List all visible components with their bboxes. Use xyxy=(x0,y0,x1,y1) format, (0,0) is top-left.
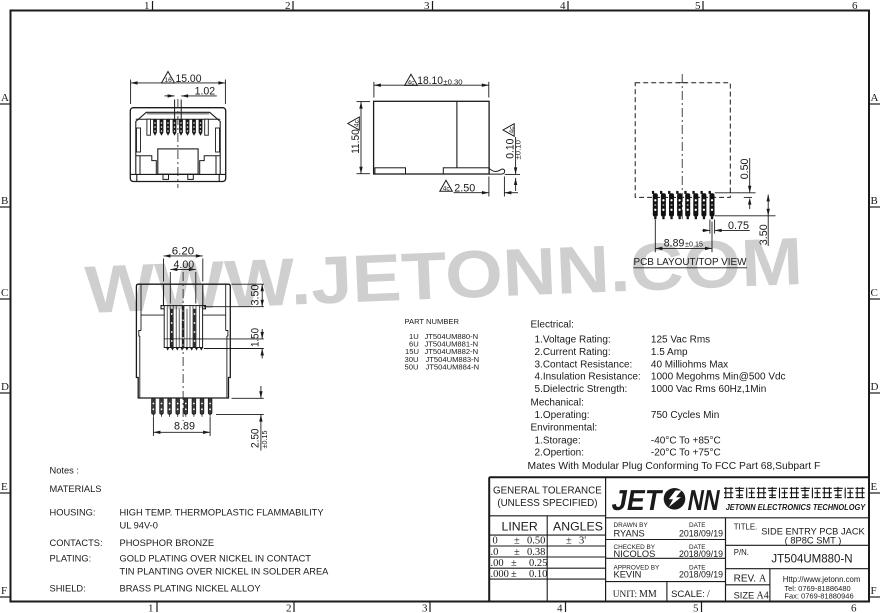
svg-text:SIZE: SIZE xyxy=(734,590,755,600)
svg-text:4c: 4c xyxy=(408,80,416,87)
svg-text:3: 3 xyxy=(422,603,428,613)
svg-text:HIGH TEMP. THERMOPLASTIC FLAMM: HIGH TEMP. THERMOPLASTIC FLAMMABILITY xyxy=(120,508,324,518)
svg-text:5: 5 xyxy=(695,0,701,12)
svg-text:B: B xyxy=(871,195,878,207)
svg-text:15.00: 15.00 xyxy=(176,73,202,85)
svg-text:±0.15: ±0.15 xyxy=(262,430,269,448)
svg-text:PART NUMBER: PART NUMBER xyxy=(405,317,460,326)
svg-text:2.Current Rating:: 2.Current Rating: xyxy=(535,347,611,358)
svg-text:TITLE.: TITLE. xyxy=(734,523,757,532)
svg-text:P/N.: P/N. xyxy=(734,548,749,557)
svg-text:UL 94V-0: UL 94V-0 xyxy=(120,521,158,531)
svg-text:±: ± xyxy=(511,558,517,569)
svg-text:3.50: 3.50 xyxy=(249,285,261,306)
svg-text:3': 3' xyxy=(579,536,586,547)
svg-text:4c: 4c xyxy=(443,185,451,192)
svg-text:6: 6 xyxy=(852,0,858,12)
svg-text:/: / xyxy=(707,589,710,600)
svg-text:0.38: 0.38 xyxy=(527,547,545,558)
svg-text:18.10: 18.10 xyxy=(417,75,443,87)
svg-text:±0.15: ±0.15 xyxy=(685,242,703,249)
svg-text:3.50: 3.50 xyxy=(758,224,770,245)
svg-text:Mechanical:: Mechanical: xyxy=(531,398,584,409)
svg-text:1000 Megohms Min@500 Vdc: 1000 Megohms Min@500 Vdc xyxy=(651,372,786,383)
svg-text:4: 4 xyxy=(557,603,563,613)
svg-text:C: C xyxy=(871,287,878,299)
svg-text:JET: JET xyxy=(610,485,665,517)
svg-text:REV.: REV. xyxy=(734,573,756,584)
svg-text:RYANS: RYANS xyxy=(614,529,645,539)
svg-text:0.75: 0.75 xyxy=(728,220,749,232)
svg-text:KEVIN: KEVIN xyxy=(614,570,642,580)
svg-text:1: 1 xyxy=(144,0,150,12)
svg-text:2.50: 2.50 xyxy=(454,182,475,194)
svg-text:Electrical:: Electrical: xyxy=(531,320,574,331)
svg-text:E: E xyxy=(871,481,878,493)
svg-text:D: D xyxy=(871,381,879,393)
svg-text:1.Voltage Rating:: 1.Voltage Rating: xyxy=(535,335,611,346)
svg-text:1.02: 1.02 xyxy=(195,86,216,98)
svg-text:JT504UM884-N: JT504UM884-N xyxy=(426,363,480,372)
svg-text:PCB LAYOUT/TOP VIEW: PCB LAYOUT/TOP VIEW xyxy=(634,256,747,268)
svg-text:0.50: 0.50 xyxy=(739,159,751,180)
svg-text:A4: A4 xyxy=(757,590,769,601)
svg-text:2.50: 2.50 xyxy=(250,429,262,449)
svg-text:Mates With Modular Plug Confor: Mates With Modular Plug Conforming To FC… xyxy=(528,461,821,472)
svg-text:16: 16 xyxy=(165,77,173,84)
svg-text:B: B xyxy=(1,195,8,207)
svg-text:3.Contact Resistance:: 3.Contact Resistance: xyxy=(535,359,633,370)
svg-text:JT504UM880-N: JT504UM880-N xyxy=(771,553,852,565)
svg-text:2018/09/19: 2018/09/19 xyxy=(679,570,723,580)
svg-text:750 Cycles Min: 750 Cycles Min xyxy=(651,410,719,421)
svg-text:GOLD PLATING OVER NICKEL IN CO: GOLD PLATING OVER NICKEL IN CONTACT xyxy=(120,554,312,564)
svg-text:A: A xyxy=(871,92,879,104)
svg-text:±: ± xyxy=(511,569,517,580)
svg-text:PLATING:: PLATING: xyxy=(50,554,92,564)
svg-text:±: ± xyxy=(566,536,572,547)
svg-text:Http://www.jetonn.com: Http://www.jetonn.com xyxy=(783,575,861,584)
svg-text:1.5 Amp: 1.5 Amp xyxy=(651,347,688,358)
svg-text:0.10: 0.10 xyxy=(529,569,547,580)
svg-text:LINER: LINER xyxy=(502,520,538,534)
svg-text:±0.30: ±0.30 xyxy=(443,79,462,86)
svg-text:1: 1 xyxy=(148,603,154,613)
svg-text:0.25: 0.25 xyxy=(529,558,547,569)
svg-text:4.00: 4.00 xyxy=(174,259,195,271)
svg-text:50U: 50U xyxy=(405,363,419,372)
svg-text:2.Opertion:: 2.Opertion: xyxy=(535,448,584,459)
svg-text:MATERIALS: MATERIALS xyxy=(50,484,102,494)
svg-text:Notes :: Notes : xyxy=(50,466,79,476)
svg-text:6: 6 xyxy=(851,603,857,613)
svg-text:40 Milliohms Max: 40 Milliohms Max xyxy=(651,359,728,370)
svg-text:4c: 4c xyxy=(508,126,515,134)
svg-text:A: A xyxy=(759,573,767,584)
svg-text:4.Insulation Resistance:: 4.Insulation Resistance: xyxy=(535,372,641,383)
svg-text:8.89: 8.89 xyxy=(174,420,195,432)
svg-text:.000: .000 xyxy=(491,569,509,580)
svg-text:SCALE:: SCALE: xyxy=(671,589,705,600)
svg-text:0: 0 xyxy=(493,536,498,547)
svg-text:NICOLOS: NICOLOS xyxy=(614,549,656,559)
svg-text:±: ± xyxy=(514,547,520,558)
svg-text:1000 Vac Rms 60Hz,1Min: 1000 Vac Rms 60Hz,1Min xyxy=(651,384,766,395)
svg-text:125 Vac Rms: 125 Vac Rms xyxy=(651,335,710,346)
svg-text:-20°C To +75°C: -20°C To +75°C xyxy=(651,448,721,459)
svg-text:5: 5 xyxy=(693,603,699,613)
svg-text:A: A xyxy=(1,92,9,104)
svg-text:Fax: 0769-81880946: Fax: 0769-81880946 xyxy=(784,591,853,600)
svg-text:ANGLES: ANGLES xyxy=(553,520,603,534)
svg-text:( 8P8C SMT ): ( 8P8C SMT ) xyxy=(785,536,842,546)
svg-text:.0: .0 xyxy=(491,547,499,558)
svg-text:6.20: 6.20 xyxy=(172,245,194,257)
svg-text:PHOSPHOR BRONZE: PHOSPHOR BRONZE xyxy=(120,538,215,548)
svg-text:2018/09/19: 2018/09/19 xyxy=(679,549,723,559)
svg-text:GENERAL TOLERANCE: GENERAL TOLERANCE xyxy=(493,485,602,496)
svg-text:2: 2 xyxy=(285,0,291,12)
svg-text:±: ± xyxy=(514,536,520,547)
svg-text:SHIELD:: SHIELD: xyxy=(50,583,86,593)
svg-text:CONTACTS:: CONTACTS: xyxy=(50,538,103,548)
svg-text:2018/09/19: 2018/09/19 xyxy=(679,529,723,539)
svg-text:5.Dielectric Strength:: 5.Dielectric Strength: xyxy=(535,384,628,395)
svg-text:NN: NN xyxy=(685,485,722,517)
svg-text:11.50: 11.50 xyxy=(350,129,362,154)
svg-text:8.89: 8.89 xyxy=(664,238,685,250)
svg-text:MM: MM xyxy=(639,589,657,600)
svg-text:HOUSING:: HOUSING: xyxy=(50,508,96,518)
svg-text:F: F xyxy=(871,585,877,597)
svg-text:.00: .00 xyxy=(491,558,504,569)
svg-text:3: 3 xyxy=(424,0,430,12)
svg-text:Environmental:: Environmental: xyxy=(531,422,598,433)
svg-text:1.50: 1.50 xyxy=(249,328,261,347)
svg-text:4c: 4c xyxy=(353,119,360,127)
svg-text:TIN PLANTING OVER NICKEL IN SO: TIN PLANTING OVER NICKEL IN SOLDER AREA xyxy=(120,567,330,577)
svg-text:4: 4 xyxy=(560,0,566,12)
svg-text:D: D xyxy=(1,381,9,393)
svg-text:0.50: 0.50 xyxy=(527,536,545,547)
svg-text:±0.10: ±0.10 xyxy=(515,140,522,160)
svg-text:-40°C To +85°C: -40°C To +85°C xyxy=(651,435,721,446)
svg-text:(UNLESS SPECIFIED): (UNLESS SPECIFIED) xyxy=(497,498,597,509)
svg-text:C: C xyxy=(1,287,8,299)
svg-text:UNIT:: UNIT: xyxy=(613,590,637,600)
svg-text:JETONN ELECTRONICS TECHNOLOGY: JETONN ELECTRONICS TECHNOLOGY xyxy=(726,502,867,512)
svg-text:F: F xyxy=(1,585,7,597)
svg-text:1.Storage:: 1.Storage: xyxy=(535,435,581,446)
svg-text:2: 2 xyxy=(286,603,292,613)
svg-text:E: E xyxy=(1,481,8,493)
svg-text:BRASS PLATING NICKEL ALLOY: BRASS PLATING NICKEL ALLOY xyxy=(120,583,261,593)
svg-text:1.Operating:: 1.Operating: xyxy=(535,410,590,421)
